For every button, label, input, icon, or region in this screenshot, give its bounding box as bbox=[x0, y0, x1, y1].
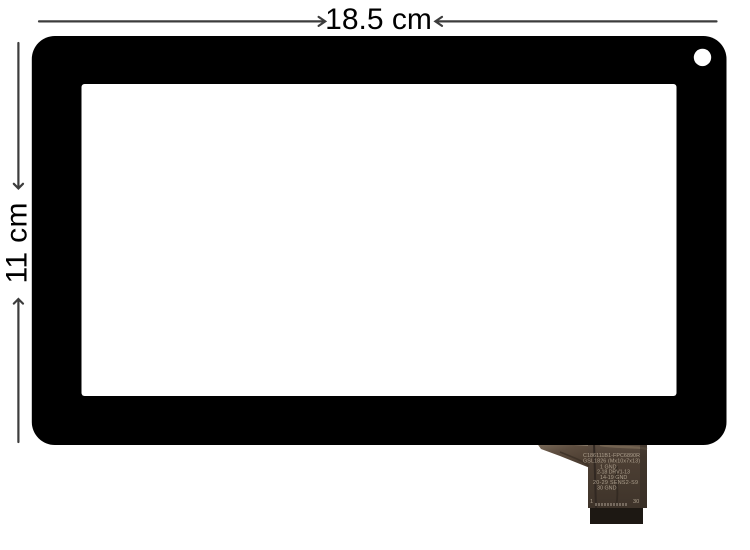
svg-text:11 cm: 11 cm bbox=[1, 203, 34, 284]
svg-text:30: 30 bbox=[633, 499, 639, 505]
svg-text:18.5 cm: 18.5 cm bbox=[325, 3, 432, 36]
svg-text:1: 1 bbox=[590, 499, 593, 505]
svg-text:30 GND: 30 GND bbox=[597, 486, 617, 492]
